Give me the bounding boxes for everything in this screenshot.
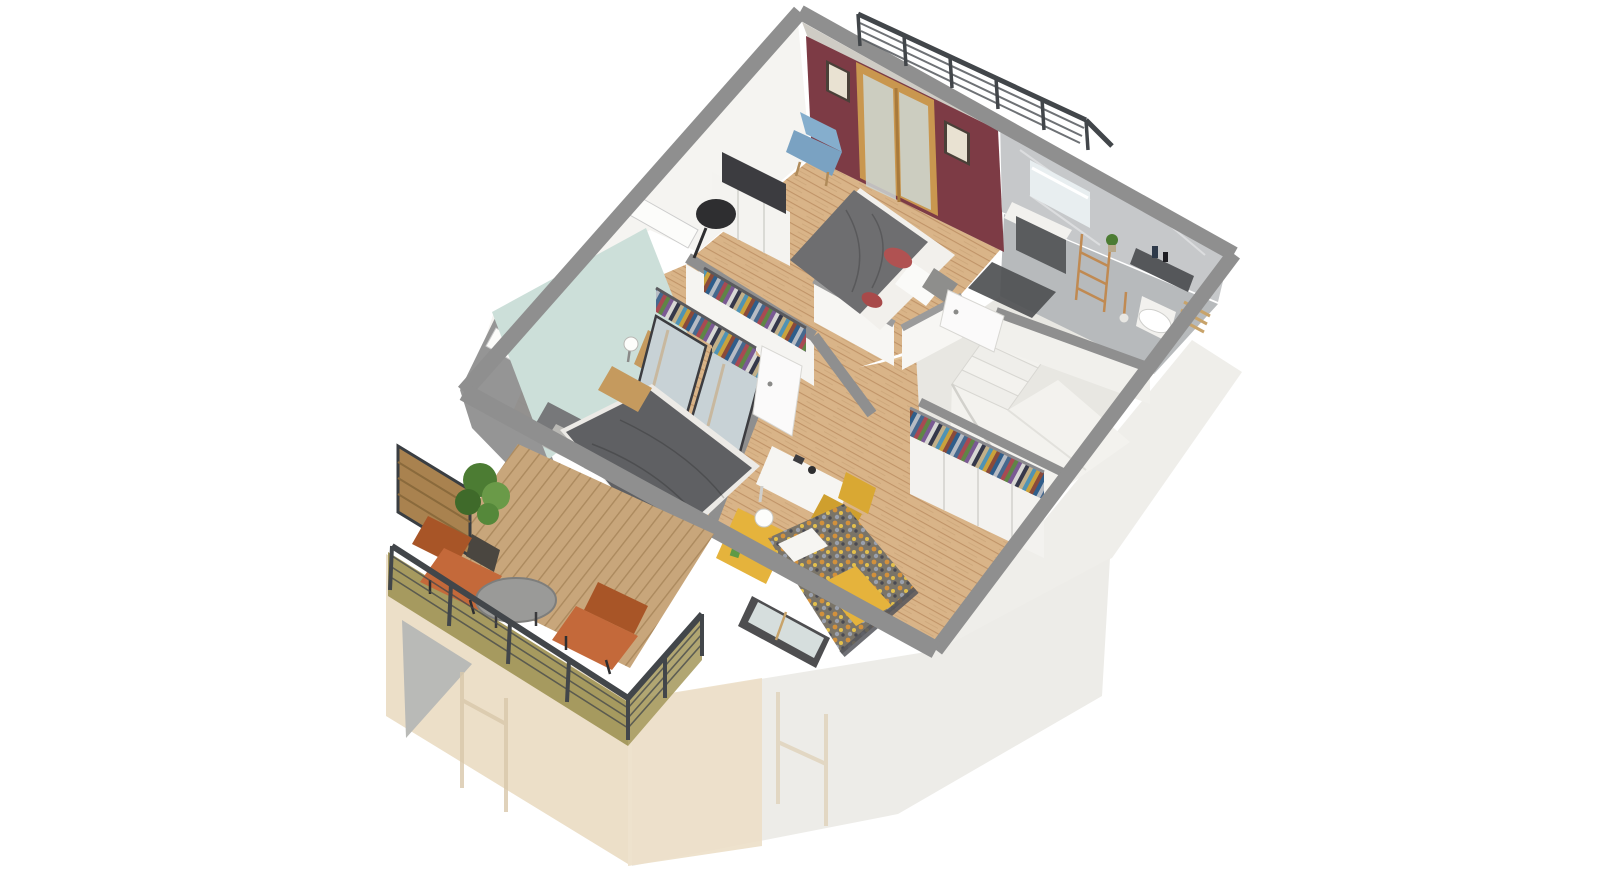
door-glass-left bbox=[863, 74, 896, 200]
door-glass-right bbox=[899, 92, 931, 210]
bottle-black bbox=[1163, 252, 1168, 262]
bottle-dark bbox=[1152, 246, 1158, 258]
ball-table-lamp bbox=[624, 337, 638, 351]
terrace-railing-return bbox=[1086, 120, 1112, 146]
globe-lamp bbox=[755, 509, 773, 527]
floor-plan-render bbox=[0, 0, 1600, 885]
desk-lamp bbox=[808, 466, 816, 474]
floor-plan-stage bbox=[0, 0, 1600, 885]
